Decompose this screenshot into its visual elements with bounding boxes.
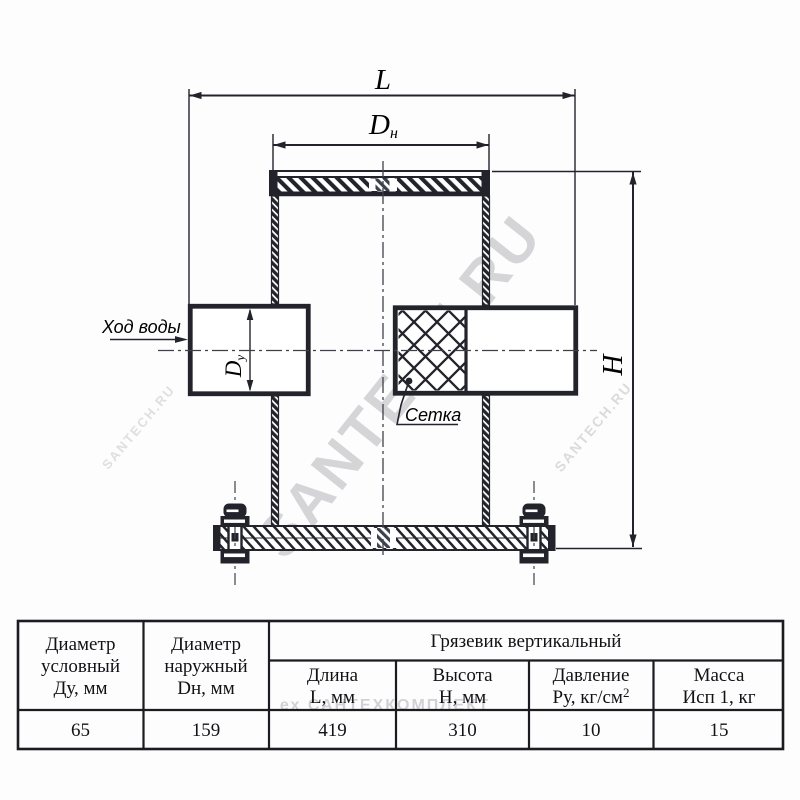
svg-text:H: H bbox=[597, 352, 629, 376]
svg-text:Ход воды: Ход воды bbox=[101, 317, 181, 337]
svg-text:Давление: Давление bbox=[553, 665, 630, 686]
svg-text:Масса: Масса bbox=[694, 665, 745, 686]
svg-text:L, мм: L, мм bbox=[310, 687, 355, 708]
svg-text:419: 419 bbox=[318, 720, 347, 741]
svg-text:Dн, мм: Dн, мм bbox=[177, 678, 234, 699]
svg-text:Ру, кг/см2: Ру, кг/см2 bbox=[553, 685, 630, 708]
svg-text:условный: условный bbox=[41, 656, 120, 677]
svg-text:Ду, мм: Ду, мм bbox=[53, 678, 107, 699]
svg-text:Диаметр: Диаметр bbox=[45, 634, 115, 655]
svg-text:310: 310 bbox=[448, 720, 477, 741]
svg-text:Длина: Длина bbox=[307, 665, 359, 686]
svg-text:Высота: Высота bbox=[432, 665, 493, 686]
svg-text:Исп 1, кг: Исп 1, кг bbox=[682, 687, 755, 708]
svg-text:Диаметр: Диаметр bbox=[171, 634, 241, 655]
svg-text:15: 15 bbox=[710, 720, 729, 741]
svg-text:Сетка: Сетка bbox=[405, 405, 461, 425]
svg-text:Н, мм: Н, мм bbox=[439, 687, 486, 708]
svg-text:159: 159 bbox=[192, 720, 221, 741]
svg-text:L: L bbox=[374, 64, 391, 96]
svg-text:65: 65 bbox=[71, 720, 90, 741]
svg-text:10: 10 bbox=[582, 720, 601, 741]
svg-text:Грязевик вертикальный: Грязевик вертикальный bbox=[431, 631, 622, 652]
svg-text:наружный: наружный bbox=[164, 656, 247, 677]
